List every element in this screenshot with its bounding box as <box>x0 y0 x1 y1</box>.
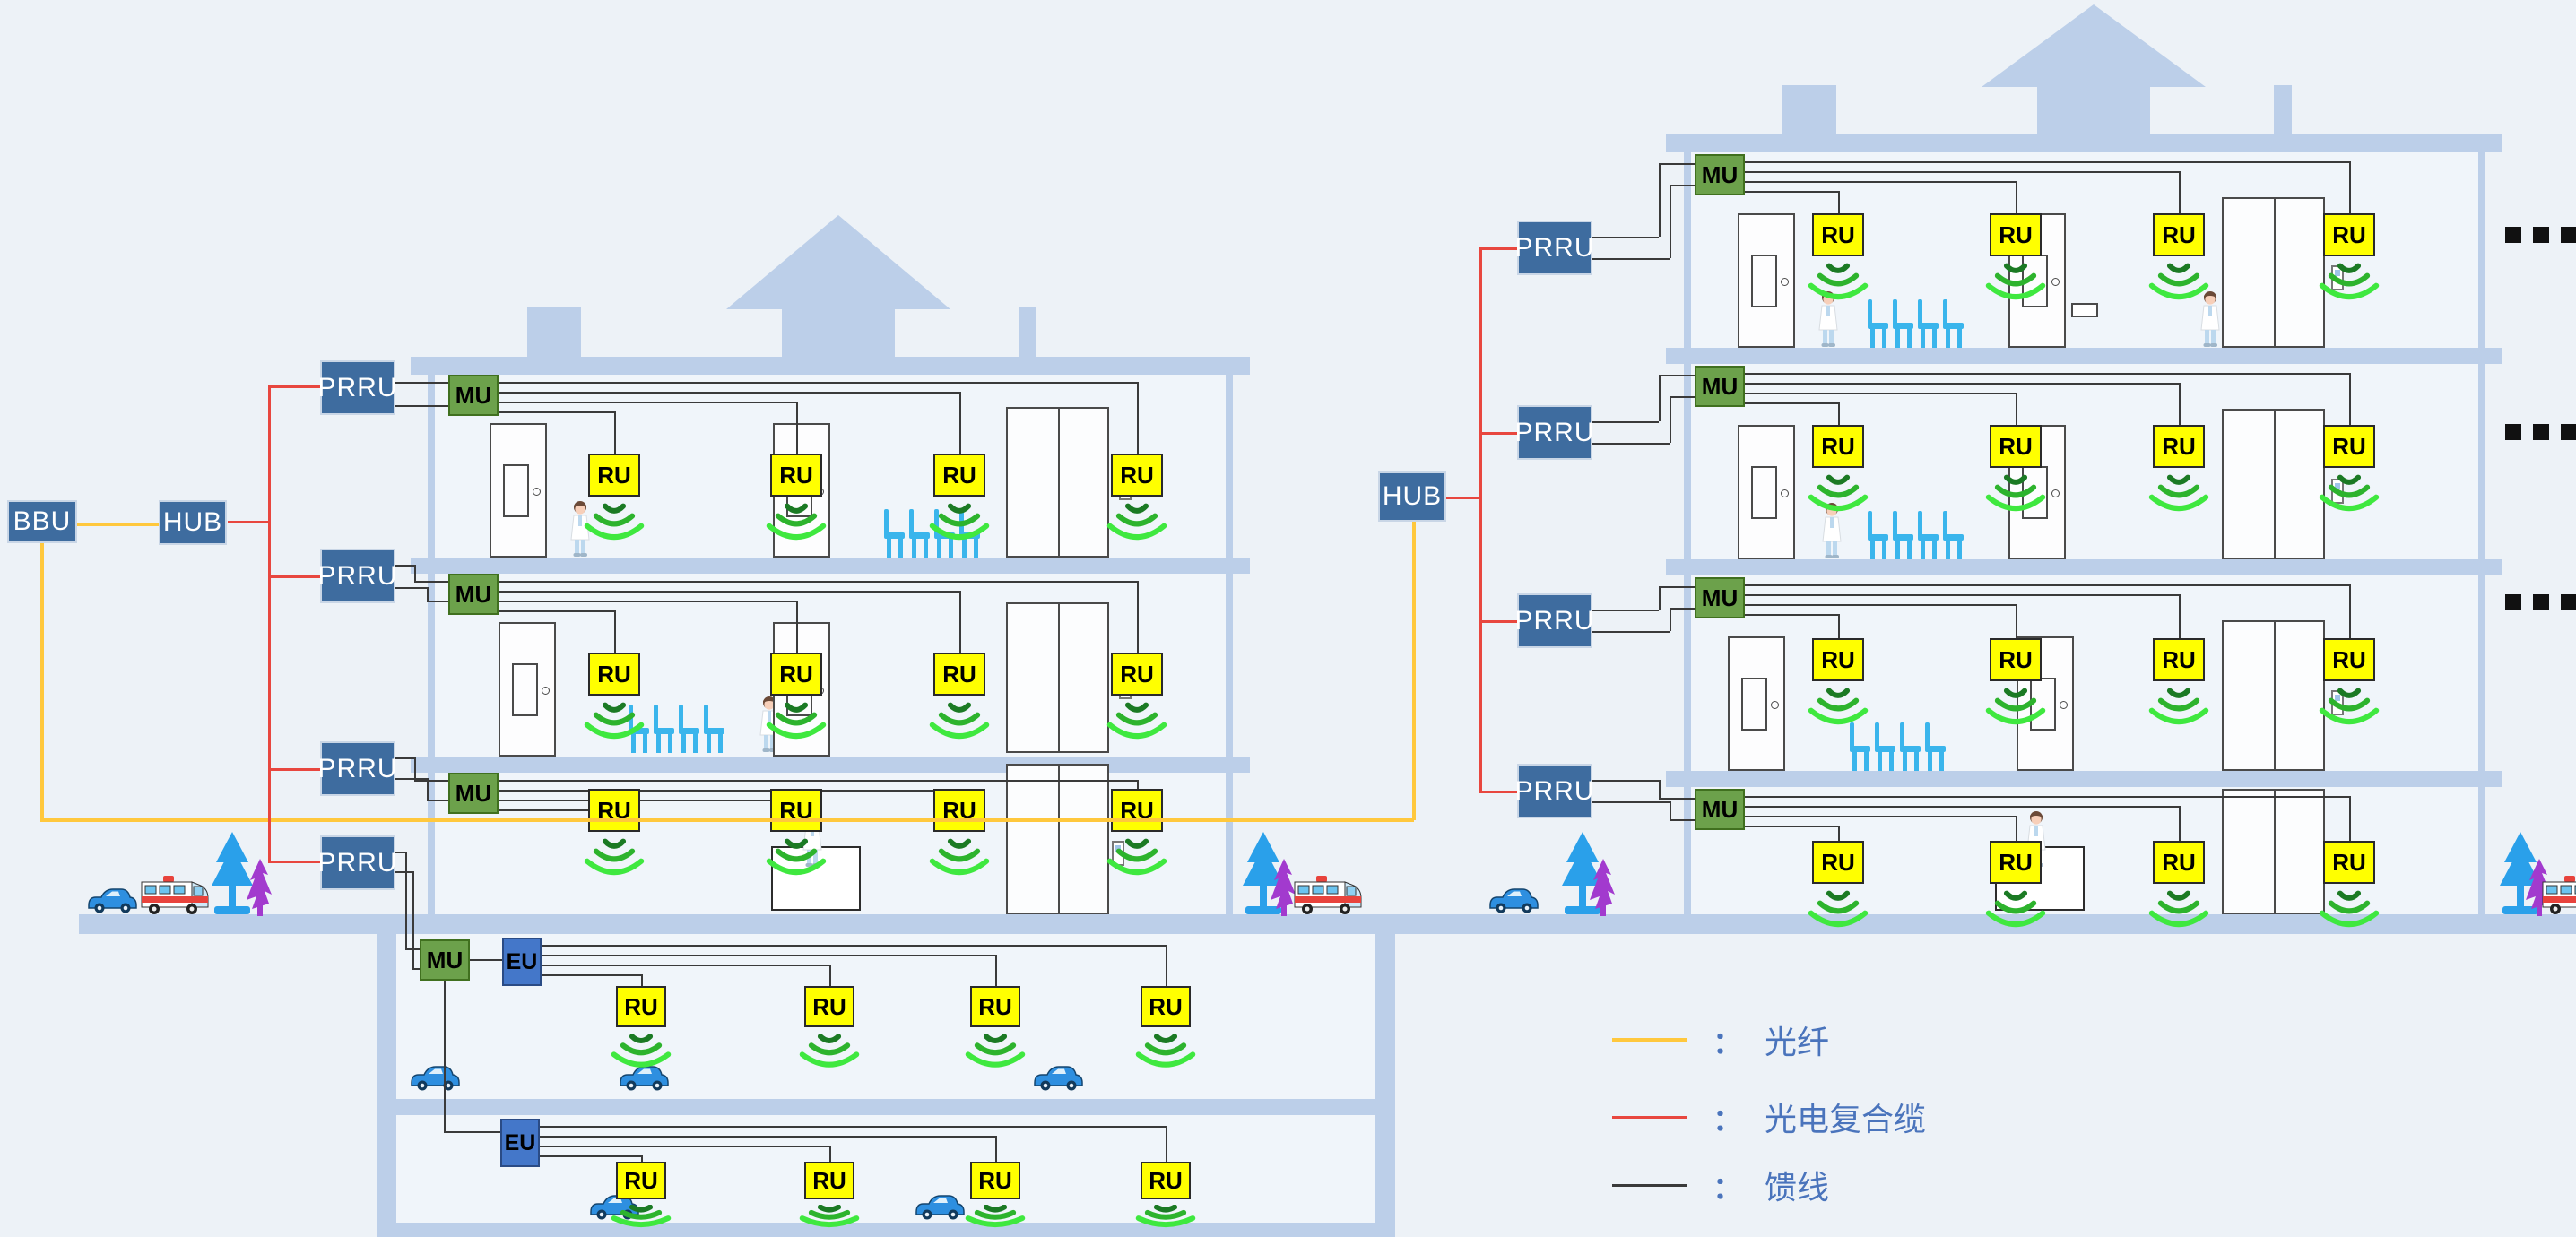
ru-box: RU <box>2153 213 2205 256</box>
basement-1-interior <box>396 934 1375 1099</box>
right-building-floor-slab <box>1666 559 2502 575</box>
prru-box: PRRU <box>320 835 395 890</box>
feeder-cable <box>499 591 959 593</box>
prru-box: PRRU <box>1517 221 1592 275</box>
signal-waves-icon <box>1983 889 2048 930</box>
elevator <box>2222 409 2325 559</box>
ru-box: RU <box>1812 638 1864 681</box>
signal-waves-icon <box>1806 473 1870 515</box>
feeder-cable <box>499 601 796 602</box>
signal-waves-icon <box>764 837 828 878</box>
feeder-cable <box>414 565 416 581</box>
basement-floor-slab <box>377 1099 1395 1115</box>
feeder-cable <box>1659 375 1695 376</box>
feeder-cable <box>1745 604 2016 606</box>
waiting-chairs <box>1849 722 1947 771</box>
ru-box: RU <box>804 986 854 1027</box>
feeder-cable <box>2349 796 2351 841</box>
feeder-cable <box>499 402 796 403</box>
elevator <box>2222 620 2325 771</box>
feeder-cable <box>614 411 616 454</box>
feeder-cable <box>1670 608 1695 610</box>
basement-bottom-slab <box>377 1223 1395 1237</box>
feeder-cable <box>1670 608 1671 631</box>
feeder-cable <box>444 981 446 1131</box>
prru-box: PRRU <box>320 549 395 603</box>
feeder-cable <box>1745 806 2179 808</box>
ru-box: RU <box>1990 841 2042 884</box>
left-roof-chimney <box>527 307 581 357</box>
waiting-chairs <box>1867 299 1965 348</box>
left-building-floor-slab <box>411 558 1250 574</box>
feeder-cable <box>959 392 961 454</box>
trunk-line <box>1479 791 1517 793</box>
ru-box: RU <box>616 1162 666 1199</box>
more-floors-dot <box>2561 227 2576 243</box>
signal-waves-icon <box>2147 473 2211 515</box>
feeder-cable <box>395 382 421 384</box>
more-floors-dot <box>2533 594 2549 610</box>
feeder-cable <box>1659 163 1695 165</box>
feeder-cable <box>1745 584 2349 586</box>
feeder-cable <box>2179 383 2181 425</box>
feeder-cable <box>1166 945 1167 986</box>
elevator <box>1006 407 1109 558</box>
elevator <box>1006 602 1109 753</box>
elevator <box>2222 197 2325 348</box>
feeder-cable <box>427 778 429 800</box>
trunk-line <box>40 543 44 820</box>
feeder-cable <box>2016 181 2017 213</box>
trunk-line <box>268 575 320 578</box>
feeder-cable <box>2349 373 2351 425</box>
feeder-cable <box>1592 780 1659 782</box>
signal-waves-icon <box>963 1205 1028 1228</box>
feeder-cable <box>1745 161 2349 163</box>
mu-box: MU <box>448 375 499 416</box>
ru-box: RU <box>1141 1162 1191 1199</box>
composite-line-swatch <box>1612 1116 1687 1119</box>
left-roof-arrow <box>726 215 950 357</box>
feeder-cable <box>427 587 429 601</box>
ru-box: RU <box>588 454 640 497</box>
feeder-cable <box>430 405 448 407</box>
door <box>490 423 547 558</box>
feeder-cable <box>829 965 831 986</box>
feeder-cable <box>1745 816 2016 817</box>
feeder-cable <box>1838 402 1840 425</box>
legend-row-fiber: ： 光纤 <box>1612 1016 1829 1063</box>
ru-box: RU <box>616 986 666 1027</box>
more-floors-dot <box>2561 424 2576 440</box>
feeder-cable <box>542 965 829 966</box>
ru-box: RU <box>2323 213 2375 256</box>
feeder-cable <box>641 974 643 986</box>
shrub-icon <box>1587 859 1619 916</box>
feeder-cable <box>1670 185 1671 258</box>
signal-waves-icon <box>2317 473 2381 515</box>
trunk-line <box>268 385 271 862</box>
feeder-cable <box>1745 191 1838 193</box>
left-building-floor-slab <box>411 757 1250 773</box>
feeder-cable <box>1659 798 1695 800</box>
elevator <box>2222 789 2325 914</box>
ambulance <box>136 871 212 916</box>
ru-box: RU <box>1111 454 1163 497</box>
feeder-cable <box>414 757 416 780</box>
door <box>1738 213 1795 348</box>
feeder-cable <box>540 1136 995 1138</box>
feeder-cable <box>1745 393 2016 394</box>
feeder-cable <box>542 945 1166 947</box>
trunk-line <box>77 523 159 526</box>
feeder-cable <box>1670 396 1695 398</box>
feeder-cable <box>1592 258 1670 260</box>
feeder-cable <box>829 1146 831 1162</box>
feeder-cable <box>1592 631 1670 633</box>
mu-box: MU <box>1695 789 1745 830</box>
trunk-line <box>1446 497 1479 499</box>
signal-waves-icon <box>764 701 828 742</box>
left-building-roof <box>411 357 1250 375</box>
feeder-cable <box>1592 237 1659 238</box>
ambulance <box>1289 871 1365 916</box>
left-building-wall <box>428 375 435 914</box>
car <box>1031 1063 1085 1092</box>
legend-label-fiber: 光纤 <box>1765 1016 1829 1063</box>
signal-waves-icon <box>764 502 828 543</box>
feeder-cable <box>1745 594 2179 596</box>
feeder-cable <box>412 968 420 970</box>
feeder-cable <box>395 757 414 759</box>
feeder-cable <box>1838 826 1840 841</box>
feeder-cable <box>414 581 448 583</box>
ru-box: RU <box>588 789 640 832</box>
feeder-cable <box>499 800 796 801</box>
feeder-cable <box>2179 171 2181 213</box>
signal-waves-icon <box>582 701 646 742</box>
car <box>85 886 139 914</box>
network-architecture-diagram: ： 光纤 ： 光电复合缆 ： 馈线 BBUHUBHUBPRRUPRRUPRRUP… <box>0 0 2576 1237</box>
trunk-line <box>228 521 268 523</box>
signal-waves-icon <box>2147 687 2211 728</box>
signal-waves-icon <box>1105 502 1169 543</box>
ru-box: RU <box>804 1162 854 1199</box>
ru-box: RU <box>1990 638 2042 681</box>
prru-box: PRRU <box>1517 593 1592 648</box>
mu-box: MU <box>420 939 470 981</box>
signal-waves-icon <box>609 1033 673 1070</box>
hub-box: HUB <box>1378 471 1446 522</box>
feeder-cable <box>405 852 407 948</box>
prru-box: PRRU <box>320 360 395 415</box>
ru-box: RU <box>2323 841 2375 884</box>
trunk-line <box>1479 247 1517 250</box>
ru-box: RU <box>1141 986 1191 1027</box>
car <box>408 1063 462 1092</box>
feeder-cable <box>2179 806 2181 841</box>
signal-waves-icon <box>2147 262 2211 303</box>
feeder-cable <box>540 1146 829 1147</box>
feeder-cable <box>1166 1126 1167 1162</box>
prru-box: PRRU <box>1517 405 1592 460</box>
trunk-line <box>40 818 1414 822</box>
mu-box: MU <box>448 574 499 615</box>
feeder-cable <box>499 392 959 394</box>
right-building-wall <box>1684 152 1691 914</box>
feeder-cable <box>2349 161 2351 213</box>
basement-wall <box>377 934 396 1237</box>
eu-box: EU <box>500 1119 540 1167</box>
feeder-cable <box>1659 375 1661 421</box>
ru-box: RU <box>2153 841 2205 884</box>
more-floors-dot <box>2533 424 2549 440</box>
feeder-cable <box>1137 780 1139 789</box>
ru-box: RU <box>1111 653 1163 696</box>
feeder-cable <box>499 581 1137 583</box>
right-building-floor-slab <box>1666 771 2502 787</box>
left-roof-chimney <box>1019 307 1036 357</box>
feeder-cable <box>2179 594 2181 638</box>
signal-waves-icon <box>1806 262 1870 303</box>
prru-box: PRRU <box>320 741 395 796</box>
ru-box: RU <box>1812 213 1864 256</box>
right-building-wall <box>2478 152 2485 914</box>
more-floors-dot <box>2505 227 2521 243</box>
ru-box: RU <box>933 653 985 696</box>
signal-waves-icon <box>1806 687 1870 728</box>
right-roof-chimney <box>2274 85 2292 134</box>
basement-wall <box>1375 934 1395 1237</box>
feeder-cable <box>1592 443 1670 445</box>
signal-waves-icon <box>2317 687 2381 728</box>
feeder-cable <box>542 974 641 976</box>
signal-waves-icon <box>2317 889 2381 930</box>
signal-waves-icon <box>582 837 646 878</box>
feeder-cable <box>1838 614 1840 638</box>
feeder-cable <box>1745 373 2349 375</box>
signal-waves-icon <box>927 502 992 543</box>
fiber-line-swatch <box>1612 1038 1687 1042</box>
ru-box: RU <box>770 454 822 497</box>
feeder-cable <box>1659 586 1695 588</box>
trunk-line <box>268 861 320 863</box>
feeder-cable <box>395 565 414 567</box>
hub-box: HUB <box>159 500 227 545</box>
feeder-cable <box>1745 383 2179 385</box>
eu-box: EU <box>502 938 542 986</box>
feeder-cable <box>542 955 995 956</box>
signal-waves-icon <box>609 1205 673 1228</box>
trunk-line <box>1412 522 1416 820</box>
signal-waves-icon <box>1105 701 1169 742</box>
signal-waves-icon <box>1983 262 2048 303</box>
feeder-cable <box>499 411 614 413</box>
feeder-cable <box>499 790 959 792</box>
ru-box: RU <box>1111 789 1163 832</box>
feeder-cable <box>2016 393 2017 425</box>
ru-box: RU <box>933 454 985 497</box>
right-roof-arrow <box>1982 4 2206 134</box>
feeder-cable <box>995 1136 997 1162</box>
signal-waves-icon <box>2147 889 2211 930</box>
feeder-cable <box>1745 181 2016 183</box>
feeder-cable <box>1137 382 1139 454</box>
feeder-cable <box>1745 614 1838 616</box>
feeder-cable <box>444 1131 500 1133</box>
prru-box: PRRU <box>1517 764 1592 818</box>
feeder-cable <box>1592 801 1670 803</box>
signal-waves-icon <box>2317 262 2381 303</box>
ru-box: RU <box>1812 425 1864 468</box>
ru-box: RU <box>2323 638 2375 681</box>
signal-waves-icon <box>963 1033 1028 1070</box>
door <box>499 622 556 757</box>
feeder-cable <box>412 871 414 968</box>
feeder-cable <box>614 610 616 653</box>
feeder-line-swatch <box>1612 1184 1687 1187</box>
right-roof-chimney <box>1782 85 1836 134</box>
more-floors-dot <box>2561 594 2576 610</box>
trunk-line <box>1479 620 1517 623</box>
feeder-cable <box>1670 801 1671 819</box>
feeder-cable <box>427 800 448 801</box>
car <box>1487 886 1540 914</box>
feeder-cable <box>540 1155 641 1157</box>
legend-row-composite: ： 光电复合缆 <box>1612 1094 1926 1140</box>
ru-box: RU <box>970 1162 1020 1199</box>
mu-box: MU <box>1695 366 1745 407</box>
legend-label-feeder: 馈线 <box>1765 1162 1829 1208</box>
feeder-cable <box>421 382 448 384</box>
feeder-cable <box>2016 604 2017 638</box>
left-building-wall <box>1226 375 1233 914</box>
feeder-cable <box>1670 185 1695 186</box>
ru-box: RU <box>770 653 822 696</box>
legend-label-composite: 光电复合缆 <box>1765 1094 1926 1140</box>
more-floors-dot <box>2533 227 2549 243</box>
trunk-line <box>268 768 320 771</box>
bbu-box: BBU <box>7 500 77 543</box>
trunk-line <box>268 385 320 388</box>
feeder-cable <box>499 382 1137 384</box>
ru-box: RU <box>588 653 640 696</box>
feeder-cable <box>1745 826 1838 827</box>
feeder-cable <box>1670 396 1671 443</box>
feeder-cable <box>1659 586 1661 610</box>
signal-waves-icon <box>797 1033 862 1070</box>
mu-box: MU <box>448 773 499 814</box>
feeder-cable <box>1745 796 2349 798</box>
ru-box: RU <box>1990 213 2042 256</box>
door <box>1728 636 1785 771</box>
signal-waves-icon <box>927 837 992 878</box>
waiting-chairs <box>1867 511 1965 559</box>
feeder-cable <box>470 959 502 961</box>
more-floors-dot <box>2505 424 2521 440</box>
ru-box: RU <box>933 789 985 832</box>
signal-waves-icon <box>1983 473 2048 515</box>
feeder-cable <box>1838 191 1840 213</box>
feeder-cable <box>1659 163 1661 237</box>
signal-waves-icon <box>1105 837 1169 878</box>
signal-waves-icon <box>927 701 992 742</box>
mu-box: MU <box>1695 577 1745 618</box>
elevator <box>1006 764 1109 914</box>
feeder-cable <box>1745 171 2179 173</box>
feeder-cable <box>499 610 614 612</box>
feeder-cable <box>959 591 961 653</box>
ru-box: RU <box>2323 425 2375 468</box>
signal-waves-icon <box>1133 1033 1198 1070</box>
ru-box: RU <box>770 789 822 832</box>
feeder-cable <box>1592 421 1659 423</box>
feeder-cable <box>1592 610 1659 611</box>
door <box>1738 425 1795 559</box>
right-building-roof <box>1666 134 2502 152</box>
legend-row-feeder: ： 馈线 <box>1612 1162 1829 1208</box>
basement-2-interior <box>396 1115 1375 1223</box>
ru-box: RU <box>970 986 1020 1027</box>
legend-separator: ： <box>1713 1018 1743 1062</box>
feeder-cable <box>427 601 448 602</box>
feeder-cable <box>2016 816 2017 841</box>
feeder-cable <box>395 405 430 407</box>
feeder-cable <box>1659 780 1661 798</box>
feeder-cable <box>796 402 798 454</box>
feeder-cable <box>395 778 427 780</box>
ru-box: RU <box>2153 638 2205 681</box>
feeder-cable <box>540 1126 1166 1128</box>
right-building-floor-slab <box>1666 348 2502 364</box>
ru-box: RU <box>2153 425 2205 468</box>
more-floors-dot <box>2505 594 2521 610</box>
trunk-line <box>1479 432 1517 435</box>
legend-separator: ： <box>1713 1095 1743 1139</box>
signal-waves-icon <box>582 502 646 543</box>
signal-waves-icon <box>1983 687 2048 728</box>
feeder-cable <box>796 601 798 653</box>
signal-waves-icon <box>797 1205 862 1228</box>
feeder-cable <box>499 780 1137 782</box>
trunk-line <box>1479 247 1482 791</box>
feeder-cable <box>1670 819 1695 821</box>
feeder-cable <box>641 1155 643 1162</box>
ambulance <box>2537 871 2576 916</box>
feeder-cable <box>1745 402 1838 404</box>
mu-box: MU <box>1695 154 1745 195</box>
feeder-cable <box>414 780 448 782</box>
shrub-icon <box>244 859 276 916</box>
signal-waves-icon <box>1133 1205 1198 1228</box>
feeder-cable <box>2349 584 2351 638</box>
legend-separator: ： <box>1713 1163 1743 1207</box>
ru-box: RU <box>1812 841 1864 884</box>
wall-sign <box>2071 303 2098 317</box>
car <box>913 1192 967 1221</box>
feeder-cable <box>1137 581 1139 653</box>
signal-waves-icon <box>1806 889 1870 930</box>
feeder-cable <box>995 955 997 986</box>
feeder-cable <box>395 871 412 873</box>
ru-box: RU <box>1990 425 2042 468</box>
feeder-cable <box>395 587 427 589</box>
